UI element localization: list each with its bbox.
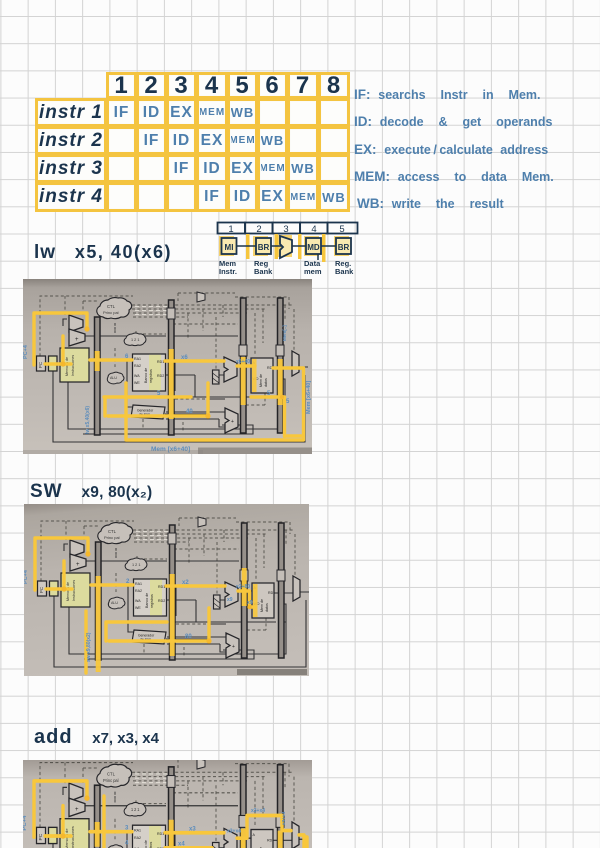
svg-text:Bank: Bank xyxy=(254,267,273,276)
svg-text:40: 40 xyxy=(186,409,193,415)
svg-text:3: 3 xyxy=(283,224,288,235)
svg-text:80: 80 xyxy=(185,634,192,640)
svg-text:x2+80: x2+80 xyxy=(236,584,250,590)
svg-text:x6+40: x6+40 xyxy=(236,359,250,365)
svg-text:Mem [x6+40]: Mem [x6+40] xyxy=(306,381,312,414)
svg-text:PC+4: PC+4 xyxy=(24,569,29,584)
svg-text:BR: BR xyxy=(258,243,270,252)
svg-text:Instr.: Instr. xyxy=(219,267,237,276)
svg-text:PC+4: PC+4 xyxy=(23,815,28,831)
svg-text:x9: x9 xyxy=(227,597,233,603)
svg-text:MI: MI xyxy=(225,243,234,252)
svg-text:Bank: Bank xyxy=(335,267,354,276)
svg-text:Mem[..]: Mem[..] xyxy=(282,325,287,341)
svg-text:MD: MD xyxy=(307,243,320,252)
svg-text:lw x5,40(x6): lw x5,40(x6) xyxy=(85,406,91,434)
svg-text:1: 1 xyxy=(228,224,233,235)
svg-text:x4: x4 xyxy=(178,841,185,848)
svg-text:2: 2 xyxy=(256,224,261,235)
svg-text:x3+x4: x3+x4 xyxy=(251,808,265,814)
svg-text:sw x9,80(x2): sw x9,80(x2) xyxy=(86,632,92,662)
svg-text:x2: x2 xyxy=(182,580,189,586)
svg-text:5: 5 xyxy=(339,224,344,235)
svg-text:PC+4: PC+4 xyxy=(23,344,29,359)
svg-text:x3+x4: x3+x4 xyxy=(281,811,286,825)
svg-text:x9: x9 xyxy=(247,600,253,606)
svg-text:mem: mem xyxy=(304,267,322,276)
svg-text:3: 3 xyxy=(125,824,129,831)
svg-text:x6: x6 xyxy=(181,355,188,361)
svg-text:x3+x4: x3+x4 xyxy=(227,829,241,835)
svg-text:x3: x3 xyxy=(189,825,196,832)
svg-text:4: 4 xyxy=(125,839,129,846)
svg-text:4: 4 xyxy=(311,224,316,235)
svg-text:BR: BR xyxy=(338,243,350,252)
